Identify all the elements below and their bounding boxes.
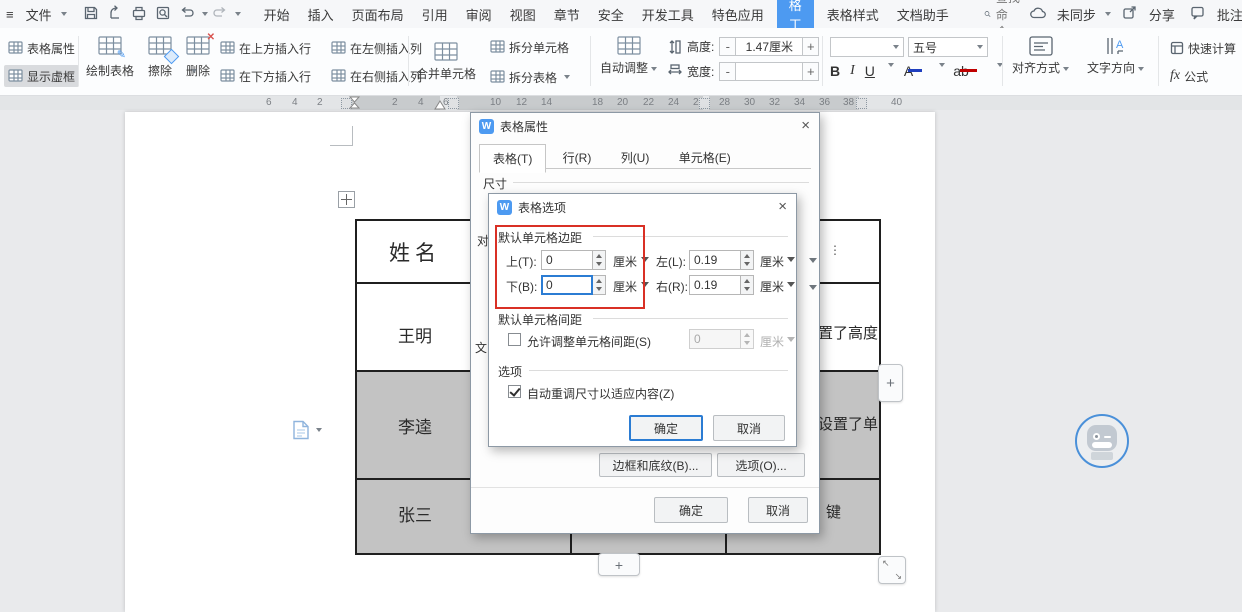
menu-tabs: 开始插入页面布局引用审阅视图章节安全开发工具特色应用 [255,5,773,24]
menu-tab[interactable]: 插入 [299,5,343,24]
show-gridlines-button[interactable]: 显示虚框 [4,65,79,87]
ok-button[interactable]: 确定 [654,497,728,523]
insert-row-below-button[interactable]: 在下方插入行 [216,65,315,87]
search-icon [984,7,991,21]
text-direction-icon: A [1104,36,1128,56]
tab-cell[interactable]: 单元格(E) [666,144,744,171]
ruler-number: 34 [794,97,805,108]
unit-dropdown-arrow-icon[interactable] [809,258,817,263]
ruler-number: 4 [418,97,424,108]
table-column-marker-icon[interactable] [699,98,710,109]
wps-writer-window: ≡ 文件 开始插入页面布局引用审阅视图章节安全开发工具特色应用 表格工具 表格样… [0,0,1242,612]
formula-label: 公式 [1184,68,1208,85]
margin-right-unit[interactable]: 厘米 [760,278,784,295]
margin-right-spinner[interactable] [741,275,754,295]
paste-page-icon [292,420,310,440]
sync-status[interactable]: 未同步 [1051,5,1102,24]
highlight-bar [960,69,977,72]
allow-spacing-checkbox[interactable] [508,333,521,346]
underline-chevron-icon [888,63,894,67]
height-plus-button[interactable]: + [802,37,819,56]
insert-row-button[interactable]: + [598,553,640,576]
ruler-number: 24 [668,97,679,108]
font-size-value: 五号 [913,39,937,56]
split-cells-label: 拆分单元格 [509,39,569,56]
ruler-number: 18 [592,97,603,108]
tab-row[interactable]: 行(R) [550,144,605,171]
col-width-icon [668,64,682,80]
eraser-label: 擦除 [148,62,172,79]
delete-button[interactable]: ✕ 删除 [186,36,210,79]
margin-left-spinner[interactable] [741,250,754,270]
undo-chevron-icon[interactable] [202,12,208,16]
height-minus-button[interactable]: - [719,37,736,56]
pencil-icon: ✎ [117,48,126,61]
menu-tab[interactable]: 文档助手 [888,5,958,24]
comment-label[interactable]: 批注 [1211,5,1242,24]
row-height-icon [668,39,682,55]
close-icon[interactable]: × [801,118,810,133]
width-label: 宽度: [687,63,714,80]
table-cell-text[interactable]: 李逵 [383,413,447,438]
table-resize-handle[interactable]: ↖ ↘ [878,556,906,584]
merge-cells-label: 合并单元格 [416,65,476,82]
wps-logo-icon: W [479,119,494,134]
ruler-number: 10 [490,97,501,108]
unit-dropdown-arrow-icon[interactable] [641,257,649,262]
table-properties-label: 表格属性 [27,40,75,57]
tab-table[interactable]: 表格(T) [479,144,546,173]
text-direction-chevron-icon [1138,67,1144,71]
split-table-label: 拆分表格 [509,69,557,86]
margin-top-unit[interactable]: 厘米 [613,253,637,270]
ruler-number: 20 [617,97,628,108]
resize-arrow-icon: ↖ [882,558,890,569]
dialog-title: 表格属性 [500,118,548,135]
menu-tab[interactable]: 开发工具 [633,5,703,24]
margins-group-label: 默认单元格边距 [498,229,582,246]
spacing-group-label: 默认单元格间距 [498,311,582,328]
margin-left-label: 左(L): [656,253,686,270]
alignment-chevron-icon [1063,67,1069,71]
assistant-robot-icon[interactable] [1075,414,1129,468]
print-preview-icon[interactable] [155,5,171,24]
redo-icon[interactable] [212,6,228,23]
ruler-number: 32 [769,97,780,108]
width-stepper[interactable]: -+ [719,62,819,81]
margin-top-spinner[interactable] [593,250,606,270]
ruler-number: 4 [292,97,298,108]
insert-row-below-label: 在下方插入行 [239,68,311,85]
ruler-number: 30 [744,97,755,108]
cancel-button[interactable]: 取消 [748,497,808,523]
file-menu[interactable]: 文件 [20,5,58,24]
autofit-checkbox[interactable] [508,385,521,398]
resize-arrow-icon: ↘ [894,571,902,582]
formula-button[interactable]: fx 公式 [1166,65,1242,87]
size-group-label: 尺寸 [483,175,507,192]
menu-tab[interactable]: 特色应用 [703,5,773,24]
export-icon[interactable] [107,5,123,24]
dialog-titlebar[interactable]: W 表格属性 × [471,113,819,139]
font-color-bar [908,69,922,72]
menu-bar: ≡ 文件 开始插入页面布局引用审阅视图章节安全开发工具特色应用 表格工具 表格样… [0,0,1242,29]
menu-tab[interactable]: 视图 [501,5,545,24]
ruler-number: 12 [516,97,527,108]
width-value[interactable] [736,62,802,81]
table-tools-ribbon: 表格属性 显示虚框 ✎ 绘制表格 擦除 ✕ 删除 在 [0,28,1242,96]
menu-tab[interactable]: 开始 [255,5,299,24]
margin-bottom-label: 下(B): [506,278,537,295]
ruler-number: 38 [843,97,854,108]
insert-col-right-button[interactable]: 在右侧插入列 [327,65,426,87]
autofit-label: 自动调整 [600,61,648,75]
ruler-number: 6 [266,97,272,108]
table-cell-fragment[interactable]: 键 [826,501,880,522]
width-minus-button[interactable]: - [719,62,736,81]
table-cell-text[interactable]: 姓名 [383,237,447,267]
dialog-title: 表格选项 [518,199,566,216]
unit-dropdown-arrow-icon[interactable] [787,257,795,262]
sync-chevron-icon [1105,12,1111,16]
more-commands-icon[interactable] [235,12,241,16]
delete-x-icon: ✕ [207,32,215,43]
print-icon[interactable] [131,5,147,24]
chevron-down-icon [61,12,67,16]
options-group-label: 选项 [498,363,522,380]
margin-crop-mark [352,126,353,146]
unit-dropdown-arrow-icon [787,337,795,342]
margin-bottom-spinner[interactable] [593,275,606,295]
width-plus-button[interactable]: + [802,62,819,81]
insert-col-left-button[interactable]: 在左侧插入列 [327,37,426,59]
quick-calc-button[interactable]: 快速计算 [1166,37,1242,59]
show-gridlines-label: 显示虚框 [27,68,75,85]
ruler-number: 14 [541,97,552,108]
autofit-label[interactable]: 自动重调尺寸以适应内容(Z) [527,385,674,402]
margin-right-label: 右(R): [656,278,688,295]
autofit-chevron-icon [651,67,657,71]
hidden-text-fragment: 文 [475,339,487,356]
cancel-button[interactable]: 取消 [713,415,785,441]
paste-options-button[interactable] [292,420,310,443]
menu-tab[interactable]: 页面布局 [343,5,413,24]
menu-tab[interactable]: 引用 [413,5,457,24]
draw-table-button[interactable]: ✎ 绘制表格 [86,36,134,79]
font-size-combo[interactable]: 五号 [908,37,988,57]
table-cell-fragment[interactable]: ⋮ [829,243,841,257]
menu-tabs-after: 表格样式文档助手 [818,5,958,24]
ruler-number: 22 [643,97,654,108]
font-family-combo[interactable] [830,37,904,57]
margin-left-unit[interactable]: 厘米 [760,253,784,270]
autofit-button[interactable]: 自动调整 [600,36,657,76]
margin-bottom-unit[interactable]: 厘米 [613,278,637,295]
margin-crop-mark [330,145,353,146]
menu-tab[interactable]: 章节 [545,5,589,24]
unit-dropdown-arrow-icon[interactable] [809,285,817,290]
italic-button[interactable]: I [850,63,855,79]
paste-chevron-icon [316,428,322,432]
insert-col-left-label: 在左侧插入列 [350,40,422,57]
close-icon[interactable]: × [778,199,787,214]
insert-column-button[interactable]: + [878,364,903,402]
insert-row-above-button[interactable]: 在上方插入行 [216,37,315,59]
draw-table-label: 绘制表格 [86,62,134,79]
delete-label: 删除 [186,62,210,79]
ruler-number: 28 [719,97,730,108]
ruler-number: 36 [819,97,830,108]
undo-icon[interactable] [179,6,195,23]
split-cells-button[interactable]: 拆分单元格 [486,36,574,58]
allow-spacing-label[interactable]: 允许调整单元格间距(S) [527,333,651,350]
table-options-dialog: W 表格选项 × 默认单元格边距 上(T): 0 厘米 左(L): 0.19 厘… [488,193,797,447]
menu-tab[interactable]: 审阅 [457,5,501,24]
unit-dropdown-arrow-icon[interactable] [787,282,795,287]
menu-tab[interactable]: 表格样式 [818,5,888,24]
spacing-input-disabled: 0 [689,329,741,349]
spacing-unit-disabled: 厘米 [760,333,784,350]
quick-calc-label: 快速计算 [1188,40,1236,57]
delete-chevron-icon [191,69,197,73]
table-move-handle[interactable] [338,191,355,208]
cloud-sync-icon[interactable] [1029,6,1047,23]
insert-row-above-label: 在上方插入行 [239,40,311,57]
split-table-chevron-icon [564,75,570,79]
indent-marker-icon[interactable] [349,96,360,110]
hamburger-icon[interactable]: ≡ [0,7,20,22]
table-cell-fragment[interactable]: 设置了单 [818,413,880,434]
comment-icon[interactable] [1189,5,1207,23]
font-color-chevron-icon [939,63,945,67]
height-label: 高度: [687,38,714,55]
table-column-marker-icon[interactable] [856,98,867,109]
wps-logo-icon: W [497,200,512,215]
margin-left-input[interactable]: 0.19 [689,250,741,270]
split-table-button[interactable]: 拆分表格 [486,66,574,88]
ruler-number: 2 [392,97,398,108]
height-stepper[interactable]: -1.47厘米+ [719,37,819,56]
save-icon[interactable] [83,5,99,24]
alignment-icon [1029,36,1053,56]
spacing-spinner-disabled [741,329,754,349]
ruler-number: 2 [317,97,323,108]
table-column-marker-icon[interactable] [448,98,459,109]
dialog-titlebar[interactable]: W 表格选项 × [489,194,796,220]
ok-button[interactable]: 确定 [629,415,703,441]
horizontal-ruler[interactable]: 642246101214182022242628303234363840 [0,96,1242,110]
calculator-icon [1170,41,1184,55]
margin-bottom-input[interactable]: 0 [541,275,593,295]
dialog-tabbar: 表格(T) 行(R) 列(U) 单元格(E) [479,143,811,169]
margin-right-input[interactable]: 0.19 [689,275,741,295]
tab-column[interactable]: 列(U) [608,144,663,171]
options-button[interactable]: 选项(O)... [717,453,805,477]
underline-button[interactable]: U [865,63,875,79]
insert-col-right-label: 在右侧插入列 [350,68,422,85]
right-indent-marker-icon[interactable] [434,100,446,110]
alignment-label: 对齐方式 [1012,61,1060,75]
table-cell-fragment[interactable]: 置了高度 [818,322,880,343]
bold-button[interactable]: B [830,63,840,79]
text-direction-button[interactable]: A 文字方向 [1087,36,1144,76]
eraser-button[interactable]: 擦除 [148,36,172,79]
unit-dropdown-arrow-icon[interactable] [641,282,649,287]
table-properties-button[interactable]: 表格属性 [4,37,79,59]
margin-top-label: 上(T): [506,253,537,270]
table-cell-text[interactable]: 张三 [383,501,447,526]
table-cell-text[interactable]: 王明 [383,322,447,347]
fx-icon: fx [1170,68,1180,84]
ruler-number: 40 [891,97,902,108]
merge-cells-button[interactable]: 合并单元格 [416,42,476,82]
height-value[interactable]: 1.47厘米 [736,37,802,56]
alignment-button[interactable]: 对齐方式 [1012,36,1069,76]
svg-text:A: A [1116,39,1124,51]
margin-top-input[interactable]: 0 [541,250,593,270]
menu-tab[interactable]: 安全 [589,5,633,24]
borders-shading-button[interactable]: 边框和底纹(B)... [599,453,712,477]
share-label[interactable]: 分享 [1143,5,1181,24]
text-direction-label: 文字方向 [1087,61,1135,75]
share-icon[interactable] [1121,5,1139,23]
